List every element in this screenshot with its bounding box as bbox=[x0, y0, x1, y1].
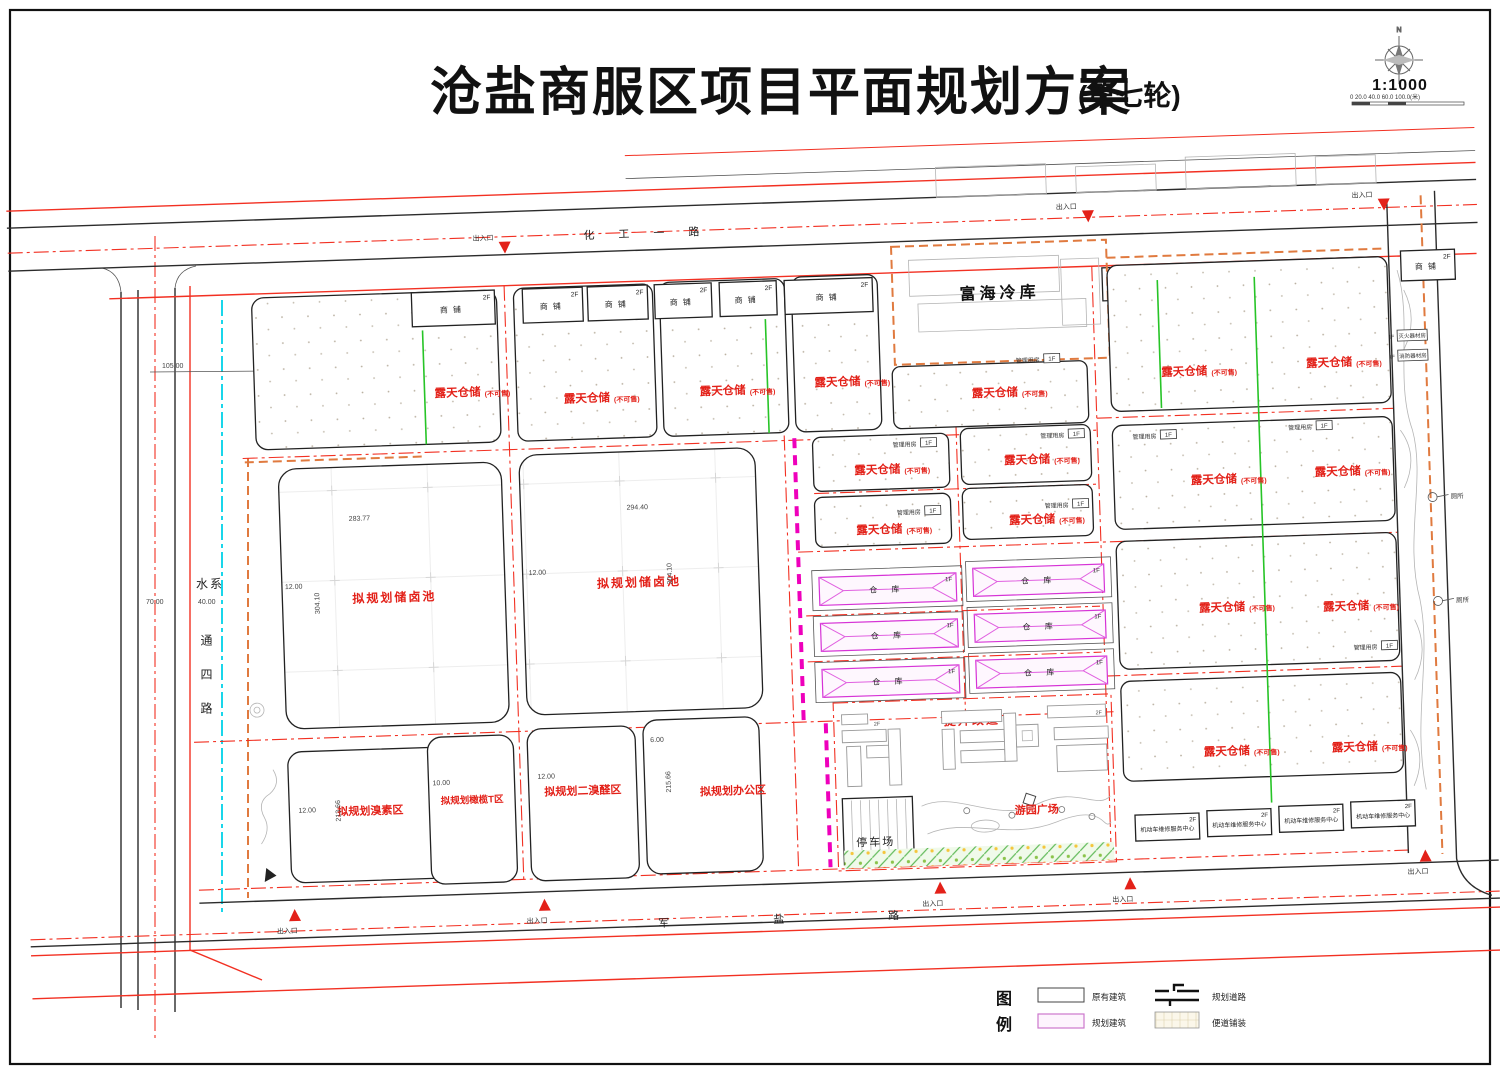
floor-label: 2F bbox=[1443, 253, 1451, 260]
zone-label-open-storage: 露天仓储 bbox=[564, 390, 611, 406]
southwest-landscape bbox=[250, 703, 280, 883]
dim-label: 40.00 bbox=[198, 599, 216, 606]
legend-label-existing: 原有建筑 bbox=[1092, 992, 1127, 1002]
zone-label-open-storage: 露天仓储 bbox=[814, 374, 861, 390]
zone-label-olive: 拟规划橄榄T区 bbox=[441, 793, 505, 807]
dim-label: 294.40 bbox=[626, 504, 648, 512]
page-title: 沧盐商服区项目平面规划方案 bbox=[430, 64, 1132, 122]
zone-label-open-storage: 露天仓储 bbox=[1306, 355, 1353, 371]
legend-label-planned: 规划建筑 bbox=[1092, 1018, 1127, 1028]
warehouse-label: 仓 库 bbox=[871, 630, 908, 641]
floor-label: 2F bbox=[874, 721, 881, 727]
zone-label-open-storage: 露天仓储 bbox=[1314, 463, 1361, 479]
zone-label-open-storage: 露天仓储 bbox=[1204, 743, 1251, 759]
scale-text: 1:1000 bbox=[1372, 77, 1428, 94]
title-block: 沧盐商服区项目平面规划方案 (第七轮) bbox=[430, 64, 1181, 122]
floor-label: 1F bbox=[1165, 433, 1173, 439]
road-label-junyan: 军盐路 bbox=[658, 906, 1003, 930]
zone-label-open-storage: 露天仓储 bbox=[1009, 512, 1056, 528]
parking-label: 停车场 bbox=[856, 834, 895, 849]
zone-label-open-storage: 露天仓储 bbox=[1199, 599, 1246, 615]
dim-label: 304.10 bbox=[666, 563, 674, 585]
floor-label: 1F bbox=[1094, 614, 1102, 620]
scale-bar: 0 20.0 40.0 60.0 100.0(米) bbox=[1350, 93, 1464, 105]
floor-label: 2F bbox=[1261, 813, 1269, 819]
entrance-label: 出入口 bbox=[922, 899, 943, 909]
floor-label: 1F bbox=[1096, 660, 1104, 666]
planned-road-marker bbox=[794, 438, 803, 724]
renovation-area: 提升改造 2F 2F bbox=[833, 694, 1116, 871]
garden-plaza: 游园广场 bbox=[921, 791, 1111, 835]
dim-label: 12.00 bbox=[298, 807, 316, 815]
shop-label: 商铺 bbox=[735, 294, 761, 305]
warehouse-cluster: 仓 库 仓 库 仓 库 仓 库 仓 库 仓 库 1F 1F 1F 1F 1F 1… bbox=[812, 557, 1115, 703]
dim-label: 12.00 bbox=[285, 584, 303, 592]
legend-label-pavement: 便道铺装 bbox=[1212, 1018, 1247, 1028]
south-planned-zones: 拟规划溴素区 拟规划橄榄T区 拟规划二溴醛区 拟规划办公区 bbox=[287, 716, 769, 889]
warehouse-label: 仓 库 bbox=[1021, 575, 1058, 586]
shop-label: 商铺 bbox=[1415, 261, 1441, 272]
zone-label-open-storage: 露天仓储 bbox=[434, 385, 481, 401]
shop-label: 商铺 bbox=[605, 299, 631, 310]
zone-label-open-storage: 露天仓储 bbox=[699, 383, 746, 399]
existing-buildings: 2F 2F bbox=[841, 704, 1109, 787]
warehouse-label: 仓 库 bbox=[869, 584, 906, 595]
water-label: 水系 bbox=[196, 577, 224, 591]
zone-label-open-storage: 露天仓储 bbox=[972, 385, 1019, 401]
entrance-label: 出入口 bbox=[1351, 190, 1372, 200]
legend-label-planned-road: 规划道路 bbox=[1212, 992, 1247, 1002]
warehouse-label: 仓 库 bbox=[1024, 667, 1061, 678]
floor-label: 1F bbox=[1073, 432, 1081, 438]
legend-swatch-planned bbox=[1038, 1014, 1084, 1028]
toilet-label: 厕所 bbox=[1450, 491, 1464, 500]
entrance-label: 出入口 bbox=[277, 926, 298, 936]
shop-label: 商铺 bbox=[815, 292, 841, 303]
entrance-label: 出入口 bbox=[472, 233, 493, 243]
floor-label: 1F bbox=[947, 623, 955, 629]
management-room-label: 管理用房 bbox=[1016, 356, 1040, 365]
vehicle-service-row: 机动车维修服务中心 机动车维修服务中心 机动车维修服务中心 机动车维修服务中心 … bbox=[1135, 800, 1416, 841]
floor-label: 1F bbox=[929, 509, 937, 515]
east-road: 厕所 厕所 灭火器材房 1F 消防器材房 1F bbox=[1384, 190, 1492, 898]
compass-rose: N bbox=[1375, 27, 1423, 84]
road-label-tongsi: 通四路 bbox=[199, 634, 213, 736]
floor-label: 1F bbox=[1386, 643, 1394, 649]
zone-label-open-storage: 露天仓储 bbox=[1332, 739, 1379, 755]
shop-label: 商铺 bbox=[440, 304, 466, 315]
shop-label: 商铺 bbox=[670, 296, 696, 307]
dim-label: 10.00 bbox=[432, 780, 450, 788]
floor-label: 2F bbox=[1333, 808, 1341, 814]
site-plan-drawing: 沧盐商服区项目平面规划方案 (第七轮) N 1:1000 0 20.0 40.0… bbox=[0, 0, 1500, 1074]
warehouse-label: 仓 库 bbox=[1022, 621, 1059, 632]
floor-label: 1F bbox=[945, 577, 953, 583]
entrance-label: 出入口 bbox=[527, 916, 548, 926]
zone-label-open-storage: 露天仓储 bbox=[1323, 598, 1370, 614]
floor-label: 2F bbox=[765, 285, 773, 292]
zone-label-open-storage: 露天仓储 bbox=[856, 522, 903, 538]
floor-label: 2F bbox=[1189, 817, 1197, 823]
site-plan: 化工一路 军盐路 bbox=[5, 127, 1500, 998]
zone-label-open-storage: 露天仓储 bbox=[1191, 472, 1238, 488]
road-label-huagong: 化工一路 bbox=[583, 223, 723, 242]
center-storage-blocks bbox=[812, 424, 1094, 547]
legend-swatch-pavement bbox=[1155, 1012, 1199, 1028]
floor-label: 1F bbox=[1093, 568, 1101, 574]
dim-label: 213.66 bbox=[335, 800, 343, 822]
dim-label: 70.00 bbox=[146, 599, 164, 606]
zone-label-open-storage: 露天仓储 bbox=[1004, 452, 1051, 468]
plaza-label: 游园广场 bbox=[1015, 802, 1059, 817]
legend-heading-bottom: 例 bbox=[996, 1015, 1012, 1034]
north-label: N bbox=[1396, 27, 1401, 34]
legend-swatch-existing bbox=[1038, 988, 1084, 1002]
scale-ticks: 0 20.0 40.0 60.0 100.0(米) bbox=[1350, 93, 1420, 101]
floor-label: 1F bbox=[948, 669, 956, 675]
cold-storage-area: 富海冷库 bbox=[891, 240, 1110, 365]
floor-label: 1F bbox=[925, 441, 933, 447]
brine-pool-blocks: 拟规划储卤池 拟规划储卤池 bbox=[278, 448, 764, 730]
entrance-label: 出入口 bbox=[1056, 202, 1077, 212]
floor-label: 2F bbox=[1095, 710, 1102, 716]
zone-label-open-storage: 露天仓储 bbox=[854, 462, 901, 478]
floor-label: 2F bbox=[1405, 804, 1413, 810]
floor-label: 2F bbox=[483, 294, 491, 301]
entrance-label: 出入口 bbox=[1112, 894, 1133, 904]
dim-label: 304.10 bbox=[314, 592, 322, 614]
floor-label: 2F bbox=[700, 287, 708, 294]
shop-label: 商铺 bbox=[540, 301, 566, 312]
floor-label: 1F bbox=[1048, 356, 1056, 362]
dim-label: 215.66 bbox=[665, 771, 673, 793]
junyan-road: 军盐路 bbox=[29, 860, 1500, 999]
floor-label: 1F bbox=[1077, 502, 1085, 508]
floor-label: 2F bbox=[571, 291, 579, 298]
legend-heading-top: 图 bbox=[996, 990, 1012, 1008]
dim-label: 105.00 bbox=[162, 363, 184, 370]
dim-label: 283.77 bbox=[349, 515, 371, 523]
toilet-label: 厕所 bbox=[1456, 595, 1470, 604]
legend-swatch-planned-road bbox=[1155, 985, 1199, 1006]
legend: 图 例 原有建筑 规划建筑 规划道路 便道铺装 bbox=[996, 985, 1247, 1034]
dim-label: 6.00 bbox=[650, 737, 664, 744]
zone-label-brine-pool: 拟规划储卤池 bbox=[352, 588, 436, 606]
zone-label-open-storage: 露天仓储 bbox=[1161, 363, 1208, 379]
planned-road-marker bbox=[826, 723, 831, 867]
dim-label: 12.00 bbox=[537, 773, 555, 781]
cold-storage-label: 富海冷库 bbox=[959, 282, 1040, 304]
entrance-label: 出入口 bbox=[1407, 866, 1428, 876]
floor-label: 1F bbox=[1321, 423, 1329, 429]
floor-label: 2F bbox=[861, 282, 869, 289]
page-title-round: (第七轮) bbox=[1078, 79, 1181, 111]
dim-label: 12.00 bbox=[529, 569, 547, 577]
east-storage-blocks bbox=[1106, 248, 1404, 807]
floor-label: 2F bbox=[636, 289, 644, 296]
warehouse-label: 仓 库 bbox=[872, 676, 909, 687]
